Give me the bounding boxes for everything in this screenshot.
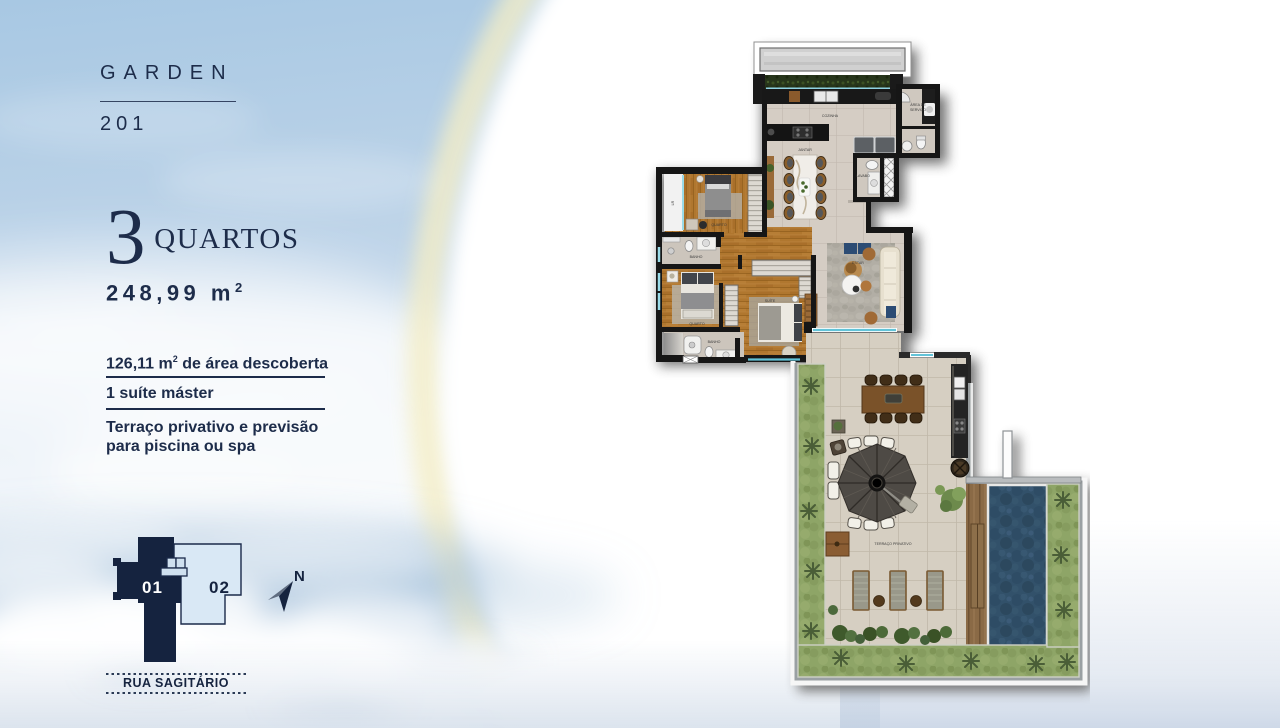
svg-text:QUARTO: QUARTO xyxy=(711,223,726,227)
svg-text:RUA SAGITÁRIO: RUA SAGITÁRIO xyxy=(123,675,229,690)
svg-text:ÁREA DE: ÁREA DE xyxy=(910,103,926,107)
svg-text:COZINHA: COZINHA xyxy=(822,114,839,118)
svg-text:BANHO: BANHO xyxy=(708,340,721,344)
svg-text:LR: LR xyxy=(671,200,675,205)
svg-text:01: 01 xyxy=(142,578,163,597)
svg-text:QUARTO: QUARTO xyxy=(689,322,704,326)
svg-text:02: 02 xyxy=(209,578,230,597)
svg-text:N: N xyxy=(294,568,305,585)
svg-text:BANHO: BANHO xyxy=(690,255,703,259)
svg-text:SERVIÇO: SERVIÇO xyxy=(910,108,926,112)
svg-text:ESTAR: ESTAR xyxy=(852,261,864,265)
svg-text:SUÍTE: SUÍTE xyxy=(765,299,776,303)
svg-text:TERRAÇO PRIVATIVO: TERRAÇO PRIVATIVO xyxy=(874,542,911,546)
svg-text:JANTAR: JANTAR xyxy=(798,148,812,152)
svg-text:LAVABO: LAVABO xyxy=(856,174,870,178)
